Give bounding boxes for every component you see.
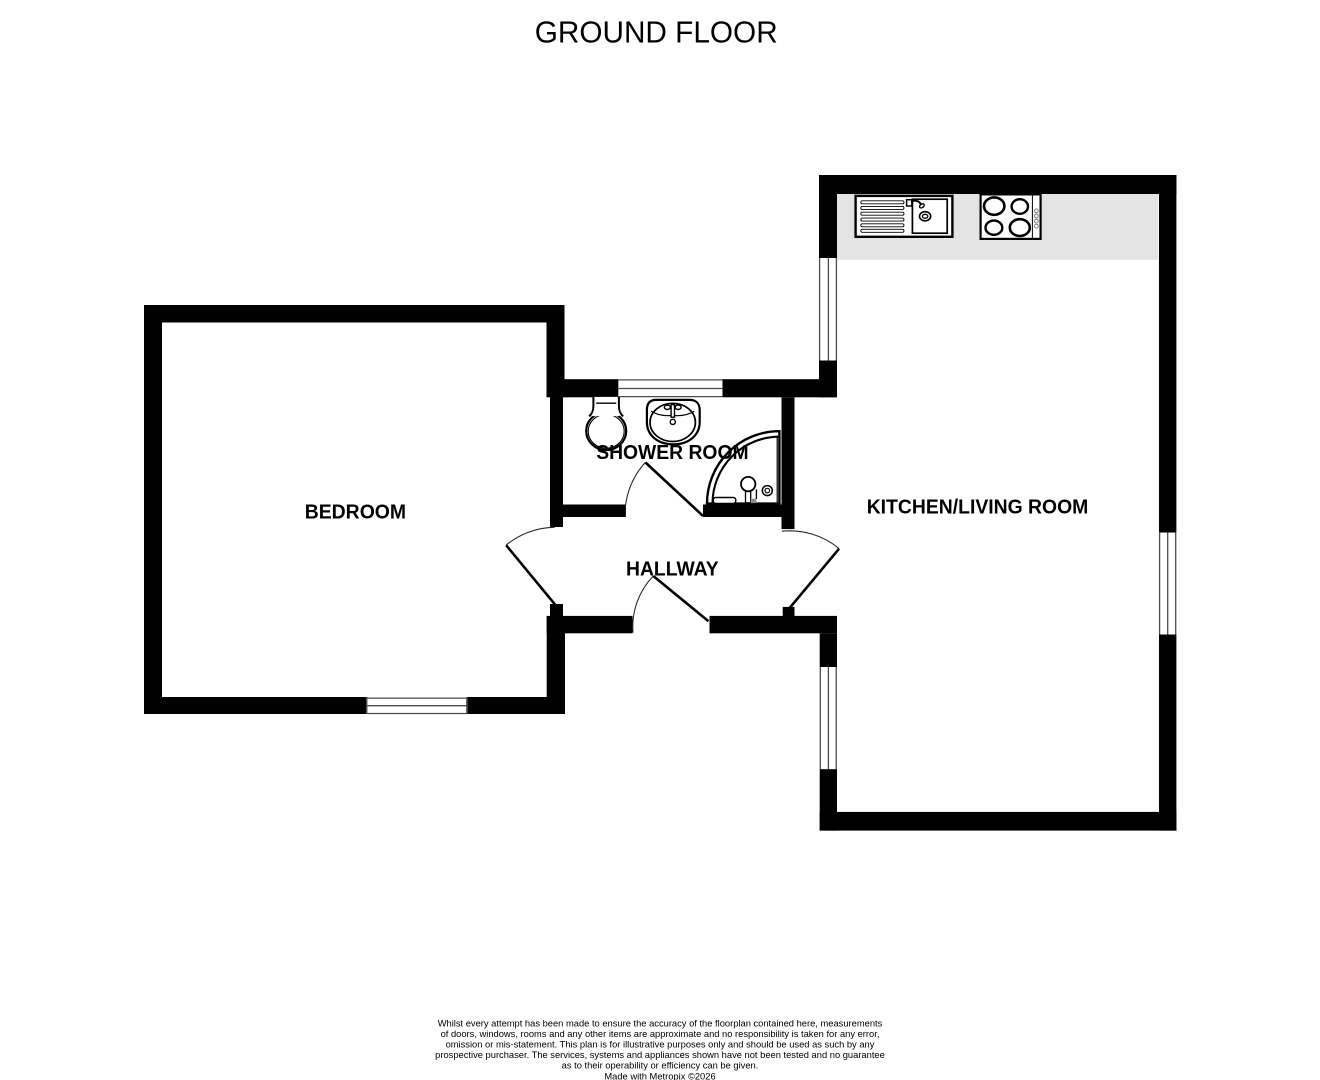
svg-text:SHOWER ROOM: SHOWER ROOM bbox=[596, 442, 748, 464]
svg-text:BEDROOM: BEDROOM bbox=[305, 502, 406, 524]
svg-text:GROUND FLOOR: GROUND FLOOR bbox=[535, 17, 778, 50]
svg-text:Whilst every attempt has been: Whilst every attempt has been made to en… bbox=[438, 1018, 883, 1028]
svg-text:KITCHEN/LIVING ROOM: KITCHEN/LIVING ROOM bbox=[867, 496, 1089, 518]
svg-text:Made with Metropix ©2026: Made with Metropix ©2026 bbox=[604, 1071, 715, 1080]
svg-text:HALLWAY: HALLWAY bbox=[626, 558, 719, 580]
svg-text:prospective purchaser. The ser: prospective purchaser. The services, sys… bbox=[435, 1050, 885, 1060]
svg-text:as to their operability or eff: as to their operability or efficiency ca… bbox=[562, 1061, 759, 1071]
svg-text:of doors, windows, rooms and a: of doors, windows, rooms and any other i… bbox=[441, 1029, 880, 1039]
svg-text:omission or mis-statement. Thi: omission or mis-statement. This plan is … bbox=[446, 1040, 875, 1050]
